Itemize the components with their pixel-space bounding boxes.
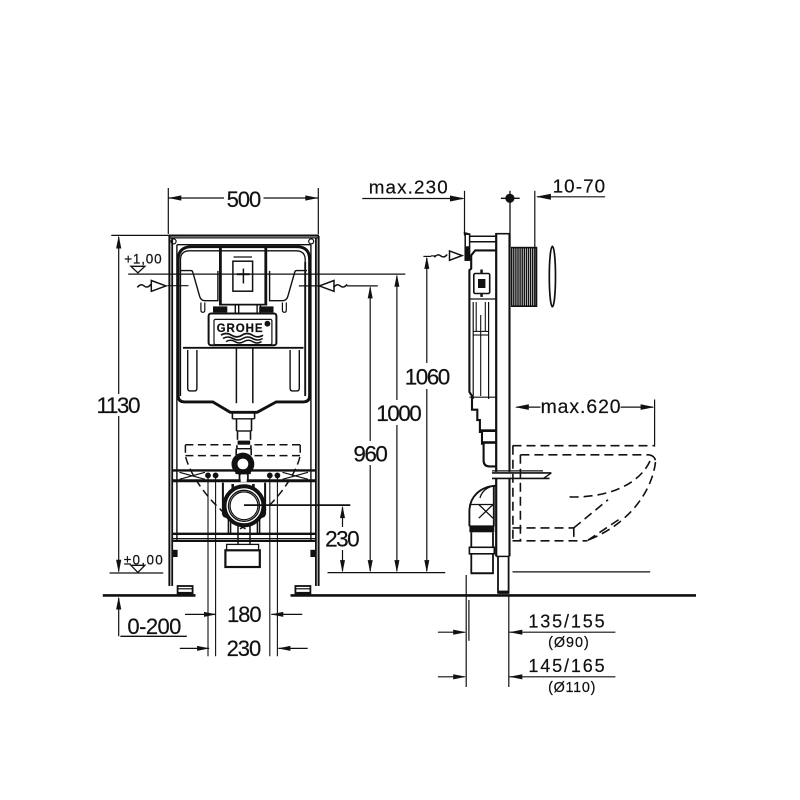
svg-text:500: 500 bbox=[227, 187, 262, 212]
svg-text:GROHE: GROHE bbox=[217, 323, 263, 335]
svg-text:10-70: 10-70 bbox=[553, 176, 606, 197]
svg-text:(Ø90): (Ø90) bbox=[548, 635, 589, 651]
svg-text:180: 180 bbox=[227, 602, 262, 627]
svg-text:230: 230 bbox=[227, 636, 262, 661]
svg-text:±0,00: ±0,00 bbox=[124, 553, 163, 568]
svg-text:(Ø110): (Ø110) bbox=[548, 680, 595, 696]
svg-text:0-200: 0-200 bbox=[127, 614, 181, 639]
svg-text:1130: 1130 bbox=[97, 393, 141, 418]
svg-text:960: 960 bbox=[353, 441, 388, 466]
svg-text:1060: 1060 bbox=[405, 364, 451, 389]
svg-text:+1,00: +1,00 bbox=[124, 252, 161, 267]
svg-text:230: 230 bbox=[325, 526, 360, 551]
svg-text:max.620: max.620 bbox=[541, 396, 621, 418]
svg-text:1000: 1000 bbox=[376, 401, 422, 426]
svg-text:max.230: max.230 bbox=[369, 177, 448, 198]
